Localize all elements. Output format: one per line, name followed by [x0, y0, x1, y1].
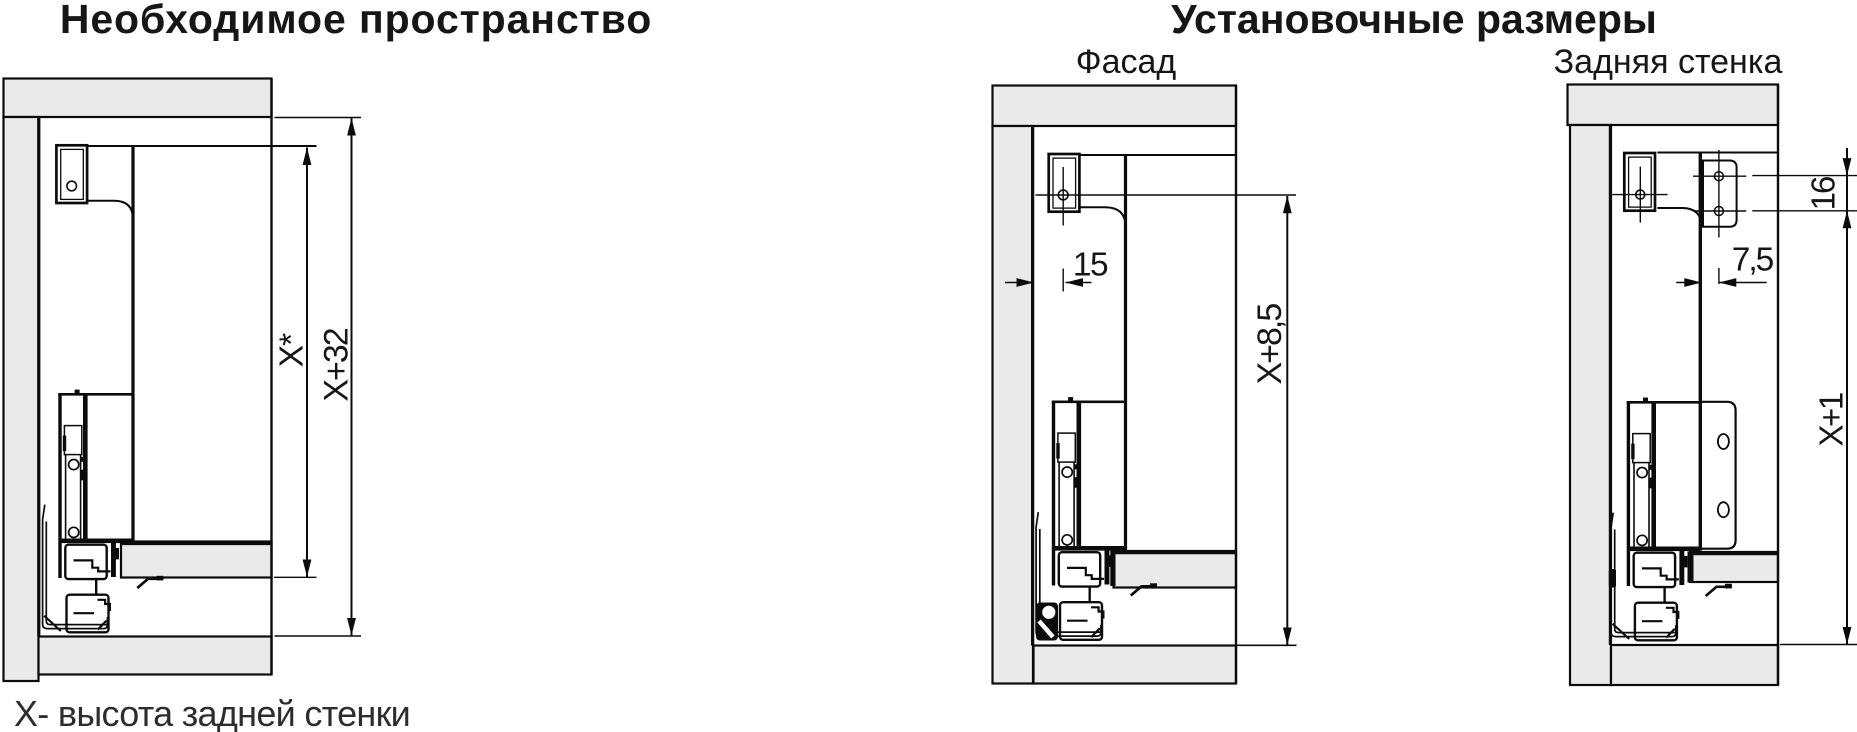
svg-text:X- высота задней стенки: X- высота задней стенки — [14, 693, 410, 732]
svg-text:15: 15 — [1073, 247, 1108, 284]
svg-text:7,5: 7,5 — [1732, 242, 1774, 279]
svg-text:X+8,5: X+8,5 — [1251, 304, 1289, 385]
svg-text:X+1: X+1 — [1813, 393, 1850, 446]
svg-text:Установочные размеры: Установочные размеры — [1171, 0, 1657, 42]
svg-text:Задняя стенка: Задняя стенка — [1554, 43, 1783, 81]
svg-text:Фасад: Фасад — [1076, 43, 1177, 81]
svg-text:Необходимое пространство: Необходимое пространство — [60, 0, 652, 42]
svg-text:16: 16 — [1804, 177, 1841, 210]
svg-text:X*: X* — [274, 333, 311, 367]
svg-text:X+32: X+32 — [318, 328, 356, 401]
